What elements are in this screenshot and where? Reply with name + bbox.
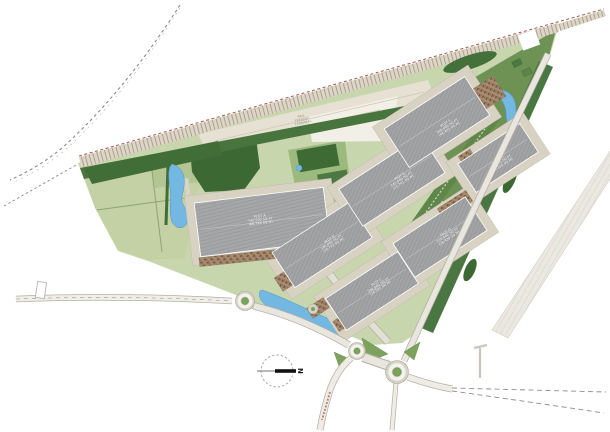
railway-spur: [4, 164, 78, 206]
roundabout-west: [236, 292, 255, 311]
east-road-dashed-2: [452, 391, 604, 413]
pond-bank: [166, 166, 168, 225]
stub-lane: [474, 345, 487, 378]
masterplan-drawing: RAIL FREIGHT TERMINAL: [0, 0, 610, 432]
roundabout-mini: [308, 304, 318, 314]
roundabout-south: [386, 361, 409, 384]
roadside-building: [35, 281, 46, 298]
southwest-exit: [320, 358, 351, 430]
junction-link: [363, 357, 389, 366]
compound-pond: [296, 165, 302, 171]
south-exit: [392, 383, 396, 430]
east-road-dashed-1: [452, 388, 606, 392]
north-arrow: N: [257, 355, 304, 387]
roundabout-north: [349, 343, 366, 360]
north-arrow-bar: [275, 369, 296, 373]
rail-track-extension: [558, 10, 606, 31]
masterplan-canvas: RAIL FREIGHT TERMINAL: [0, 0, 610, 432]
north-arrow-n: N: [296, 368, 304, 374]
